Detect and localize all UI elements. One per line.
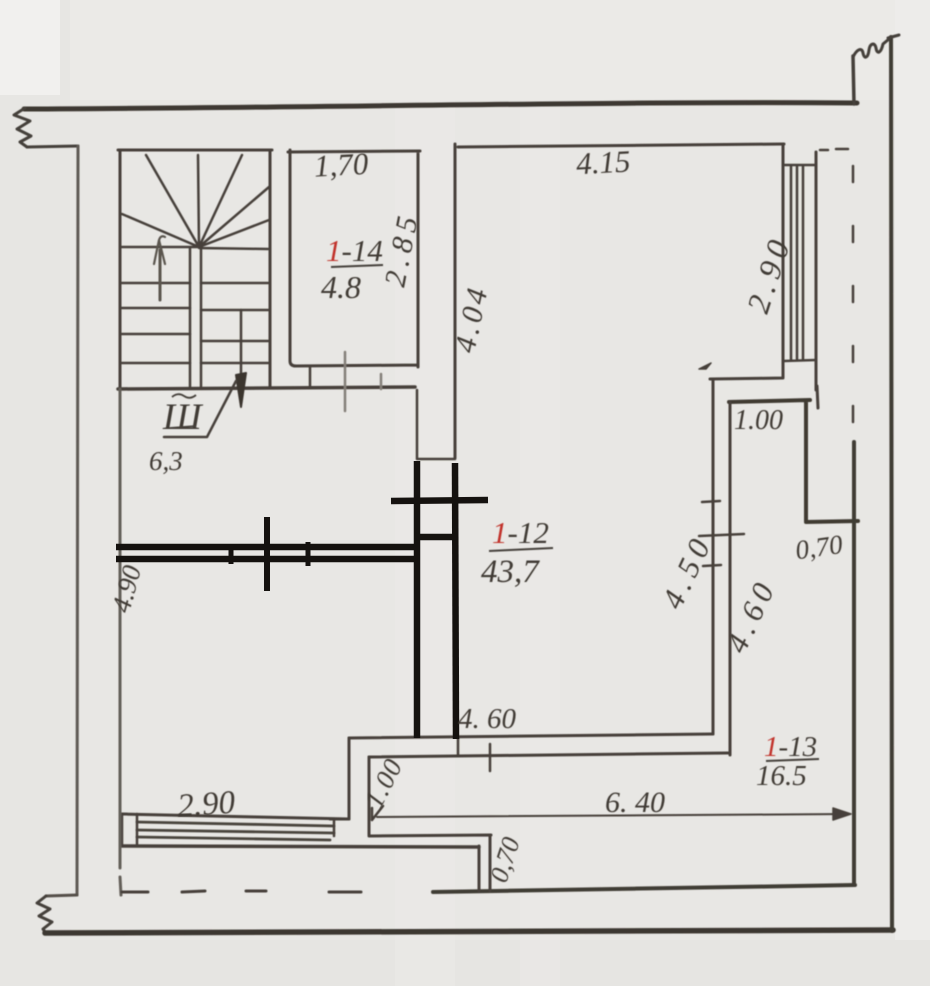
svg-text:4. 60: 4. 60 xyxy=(458,703,517,735)
svg-text:1,70: 1,70 xyxy=(313,146,370,184)
svg-text:16.5: 16.5 xyxy=(756,760,807,792)
svg-text:6,3: 6,3 xyxy=(149,446,183,476)
svg-text:Ш: Ш xyxy=(162,397,204,438)
svg-text:1-12: 1-12 xyxy=(492,515,549,550)
svg-text:4.8: 4.8 xyxy=(321,269,361,305)
svg-text:1.00: 1.00 xyxy=(734,405,783,436)
svg-text:1-13: 1-13 xyxy=(764,731,817,763)
svg-text:43,7: 43,7 xyxy=(481,554,540,590)
svg-text:6. 40: 6. 40 xyxy=(605,786,665,819)
svg-text:4.15: 4.15 xyxy=(575,143,631,181)
svg-text:1-14: 1-14 xyxy=(326,233,383,268)
svg-text:2.90: 2.90 xyxy=(176,785,237,825)
